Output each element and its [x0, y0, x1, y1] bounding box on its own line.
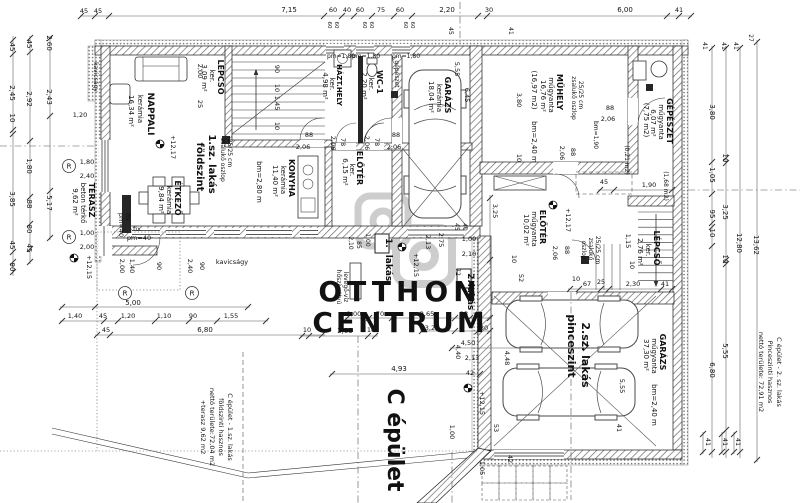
dim: 41 — [507, 27, 514, 35]
note-unit1: C épület - 1.sz. lakás — [226, 393, 234, 461]
note-unit1: nettó területe:72,04 m2 — [208, 388, 216, 466]
dim: 7,15 — [281, 6, 297, 14]
dim: 1,40 — [68, 312, 82, 320]
dim: 10 — [273, 122, 281, 130]
dim: 2,13 — [424, 235, 432, 249]
room-terasz-name: TERASZ — [87, 183, 96, 218]
dim: 60 — [409, 22, 415, 29]
dim: 45 — [94, 7, 102, 15]
dim: 2,00 — [118, 259, 126, 273]
door-size: 88 — [392, 131, 400, 139]
column-note: zsalukő — [587, 238, 594, 261]
door-size: 78 — [339, 138, 347, 146]
room-wc1-area: 2,20 m² — [360, 72, 368, 100]
r-marker-label: R — [123, 290, 128, 298]
dim: 41 — [701, 42, 708, 50]
level-mark: +12,17 — [169, 135, 177, 159]
dim: 6,80 — [197, 326, 213, 334]
window-size: 1,80 — [80, 158, 94, 166]
parapet-label: pm=1,80 — [327, 53, 355, 60]
dim: 45 — [8, 43, 16, 52]
column-note: 25/25 cm — [577, 81, 584, 109]
room-garazs1-name: GARÁZS — [443, 77, 454, 114]
dim: 45 — [99, 312, 107, 320]
dim: 2,10 — [347, 236, 354, 250]
column-note: 25/25 cm — [594, 236, 601, 264]
room-gepeszet-gross: (7,75 m2) — [642, 103, 650, 138]
window-size: 1,00 — [80, 229, 94, 237]
dim: 60 — [402, 22, 408, 29]
dim: 10 — [572, 275, 580, 283]
unit1-title: 1.sz. lakás — [206, 134, 218, 193]
watermark-text: CENTRUM — [312, 306, 487, 339]
room-lepcso2-area: 2,76 m² — [636, 238, 644, 266]
dim: 3,85 — [8, 191, 16, 207]
dim: 2,30 — [626, 280, 640, 288]
area-note: (0,21 m2) — [623, 145, 630, 175]
window-size: 2,00 — [80, 243, 94, 251]
room-hazthely-area: 4,98 m² — [321, 72, 329, 100]
dim: 13,62 — [752, 235, 760, 255]
room-terasz-area: 9,62 m² — [71, 188, 79, 216]
note-unit2: Pinceszinti hasznos — [766, 341, 774, 404]
level-mark: +12,15 — [478, 391, 486, 415]
dim: 1,90 — [642, 181, 656, 189]
fix-label: pm=40 — [117, 213, 125, 237]
column-note: zsalukő oszlop — [570, 76, 577, 120]
shaft-label: gépészet — [393, 60, 400, 88]
dim: 45 — [453, 223, 460, 231]
dim: 2,60 — [45, 35, 53, 51]
level-mark: +12,17 — [564, 208, 572, 232]
dim: 45 — [102, 326, 110, 334]
unit1-level: földszint — [194, 143, 205, 192]
room-konyha-area: 11,40 m² — [271, 165, 279, 197]
door-size: 2,06 — [363, 136, 371, 150]
dim: 5,55 — [453, 62, 461, 76]
dim: 5,17 — [45, 195, 53, 211]
door-size: 88 — [563, 246, 571, 254]
room-eloter1-area: 6,15 m² — [341, 158, 349, 186]
room-konyha-material: kerámia — [279, 166, 287, 194]
dim: 10 — [273, 84, 281, 92]
mech-unit — [633, 61, 646, 80]
r-marker-label: R — [190, 290, 195, 298]
dim: 41 — [734, 438, 742, 446]
dim: 60 — [329, 6, 337, 14]
door-size: 2,06 — [601, 115, 615, 123]
dim: 1,05 — [708, 167, 716, 183]
dim: 41 — [675, 6, 683, 14]
dim: 1,55 — [224, 312, 238, 320]
room-lepcso1-material: ker. — [208, 70, 216, 83]
door-size: 2,06 — [558, 146, 566, 160]
dim: 75 — [377, 6, 385, 14]
dim: 1,80 — [25, 158, 33, 174]
dim: 1,45 — [273, 96, 281, 110]
dim: 60 — [361, 22, 367, 29]
column-note: zsalukő oszlop — [219, 138, 226, 182]
door-size: 88 — [569, 148, 577, 156]
dim: 2,40 — [186, 259, 194, 273]
dim: 2,45 — [8, 85, 16, 101]
area-note: (1,68 m2) — [662, 171, 669, 201]
dim: 3,25 — [491, 204, 499, 218]
dim: 1,05 — [478, 461, 486, 475]
room-nappali-material: kerámia — [136, 95, 144, 123]
level-mark: +12,15 — [412, 253, 420, 277]
watermark-text: OTTHON — [318, 275, 481, 308]
dim: 41 — [615, 424, 623, 432]
dim: 90 — [189, 312, 197, 320]
dim: 5,00 — [125, 299, 141, 307]
room-lepcso2-material: ker. — [644, 244, 652, 257]
dim: 2,00 — [196, 64, 204, 78]
dim: 45 — [600, 178, 608, 186]
building-title: C épület — [382, 388, 407, 492]
dim: 67 — [583, 280, 591, 288]
dim: 27 — [747, 34, 754, 42]
room-muhely-gross: (16,97 m2) — [530, 71, 538, 110]
unit2-title: 2.sz. lakás — [579, 322, 592, 388]
room-muhely-height: bm=2,40 m — [530, 121, 538, 163]
dim: 2,43 — [45, 89, 53, 105]
dim: 2,10 — [462, 250, 476, 258]
room-terasz-material: beton térkő — [79, 183, 88, 224]
column-note: 25/25 cm — [226, 139, 233, 167]
dim: 45 — [25, 40, 33, 49]
dim: 3,80 — [515, 93, 523, 107]
dim: 52 — [517, 274, 525, 282]
dim: 1,20 — [121, 312, 135, 320]
dim: 10 — [8, 114, 16, 123]
dim: 40 — [343, 6, 351, 14]
dim: 10 — [510, 255, 518, 263]
unit1-tag: 1. — [383, 238, 393, 248]
dim: 45 — [25, 244, 33, 253]
dim: 45 — [80, 7, 88, 15]
room-etkezo-area: 9,84 m² — [157, 186, 165, 214]
room-wc1-name: WC-1 — [375, 70, 384, 94]
dim: 88 — [25, 200, 33, 209]
room-eloter2-name: ELŐTÉR — [538, 210, 549, 244]
dim: 85 — [355, 241, 362, 249]
r-marker-label: R — [67, 163, 72, 171]
parapet-label: pm=1,80 — [352, 53, 380, 60]
dim: 6,45 — [463, 88, 471, 102]
room-gepeszet-material: műgyanta — [657, 104, 666, 140]
floor-plan-canvas: NAPPALIkerámia16,34 m²LÉPCSŐker.3,09 m²1… — [0, 0, 800, 503]
dim: 6,00 — [617, 6, 633, 14]
door-size: 2,06 — [387, 143, 401, 151]
dim: 60 — [356, 6, 364, 14]
room-etkezo-material: kerámia — [165, 186, 173, 214]
room-eloter2-area: 10,02 m² — [522, 214, 530, 246]
dim: 60 — [368, 22, 374, 29]
parapet-label: pm=1,80 — [392, 53, 420, 60]
dim: 41 — [704, 438, 712, 446]
height-note: bm=1,90 — [592, 121, 599, 149]
dim: 1,10 — [157, 312, 171, 320]
gravel-label: kavicságy — [92, 62, 99, 92]
dim: 41 — [721, 438, 729, 446]
note-unit2: nettó területe: 72,91 m2 — [757, 332, 765, 412]
floor-plan-drawing: NAPPALIkerámia16,34 m²LÉPCSŐker.3,09 m²1… — [0, 0, 800, 503]
dim: 3,25 — [721, 204, 729, 220]
room-garazs2-area: 37,30 m² — [642, 339, 650, 371]
dim: 1,20 — [73, 111, 87, 119]
dim: 45 — [8, 241, 16, 250]
dim: 12,80 — [735, 233, 743, 253]
dim: 10 — [708, 229, 716, 238]
column-note: oszlop — [580, 240, 587, 259]
dim: 41 — [732, 42, 739, 50]
dim: 10 — [721, 255, 729, 264]
dim: 10 — [721, 154, 729, 163]
room-etkezo-name: ÉTKEZŐ — [173, 180, 184, 215]
room-garazs1-material: kerámia — [435, 84, 443, 112]
dim: 1,00 — [462, 235, 476, 243]
dim: 6,80 — [708, 362, 716, 378]
room-nappali-name: NAPPALI — [145, 93, 155, 136]
dim: 80 — [25, 225, 33, 234]
dim: 25 — [597, 278, 605, 286]
dim: 5,55 — [618, 379, 626, 393]
dim: 5,55 — [721, 343, 729, 359]
dim: 2,13 — [465, 354, 479, 362]
boiler — [651, 61, 667, 77]
dim: 90 — [198, 262, 206, 270]
door-size: 2,06 — [296, 143, 310, 151]
room-lepcso2-name: LÉPCSŐ — [652, 230, 663, 265]
room-garazs2-material: műgyanta — [650, 338, 659, 374]
dim: 2,92 — [25, 91, 33, 107]
note-unit1: földszinti hasznos — [217, 398, 225, 456]
r-marker-label: R — [67, 234, 72, 242]
armchair — [110, 84, 130, 104]
room-konyha-height: bm=2,80 m — [255, 161, 263, 203]
unit2-level: pinceszint — [565, 314, 578, 377]
room-garazs1-area: 18,04 m² — [427, 81, 435, 113]
door-size: 78 — [373, 138, 381, 146]
dim: 1,40 — [128, 259, 136, 273]
dim: 30 — [485, 6, 493, 14]
room-muhely-name: MŰHELY — [555, 74, 565, 110]
note-unit1: +terasz 9,62 m2 — [199, 400, 207, 455]
dim: 25 — [196, 100, 204, 108]
door-size: 88 — [606, 104, 614, 112]
door-size: 2,06 — [551, 246, 559, 260]
dim: 2,75 — [437, 233, 445, 247]
dim: 1,00 — [448, 425, 456, 439]
dim: 1,15 — [624, 234, 632, 248]
gravel-label: kavicságy — [216, 258, 248, 266]
door-size: 88 — [305, 131, 313, 139]
fix-label: pm=40 — [127, 234, 151, 242]
room-muhely-material: műgyanta — [547, 77, 556, 113]
dim: 45 — [447, 27, 454, 35]
dim: 90 — [8, 263, 16, 272]
dim: 3,80 — [708, 104, 716, 120]
dim: 4,48 — [503, 351, 511, 365]
dim: 95 — [708, 210, 716, 219]
dim: 60 — [326, 22, 332, 29]
room-konyha-name: KONYHA — [287, 159, 296, 198]
dim: 10 — [515, 154, 523, 162]
room-garazs2-name: GARÁZS — [658, 334, 669, 371]
room-garazs2-height: bm=2,40 m — [650, 384, 658, 426]
dim: 4,93 — [391, 365, 407, 373]
fix-label: fix — [133, 225, 141, 233]
dim: 10 — [303, 326, 311, 334]
dim: 42 — [506, 455, 514, 463]
dim: 10 — [628, 261, 636, 269]
dim: 41 — [720, 42, 727, 50]
window-size: 2,40 — [80, 172, 94, 180]
room-muhely-area: 16,76 m² — [539, 80, 547, 112]
dim: 40 — [461, 223, 468, 231]
room-eloter2-material: műgyanta — [530, 211, 539, 247]
dim: 60 — [333, 22, 339, 29]
dim: 41 — [661, 280, 669, 288]
dim: 4,40 — [454, 345, 462, 359]
note-unit2: C épület - 2. sz. lakás — [775, 337, 783, 407]
dim: 42 — [466, 369, 474, 377]
dim: 90 — [273, 65, 281, 73]
door-size: 2,06 — [329, 136, 337, 150]
dim: 1,00 — [364, 233, 371, 247]
room-lepcso1-name: LÉPCSŐ — [216, 59, 227, 94]
dim: 90 — [155, 262, 163, 270]
room-gepeszet-name: GÉPÉSZET — [665, 98, 676, 144]
dim: 53 — [492, 424, 500, 432]
room-nappali-area: 16,34 m² — [127, 95, 135, 127]
dim: 60 — [396, 6, 404, 14]
dim: 2,20 — [439, 6, 455, 14]
level-mark: +12,15 — [85, 255, 93, 279]
